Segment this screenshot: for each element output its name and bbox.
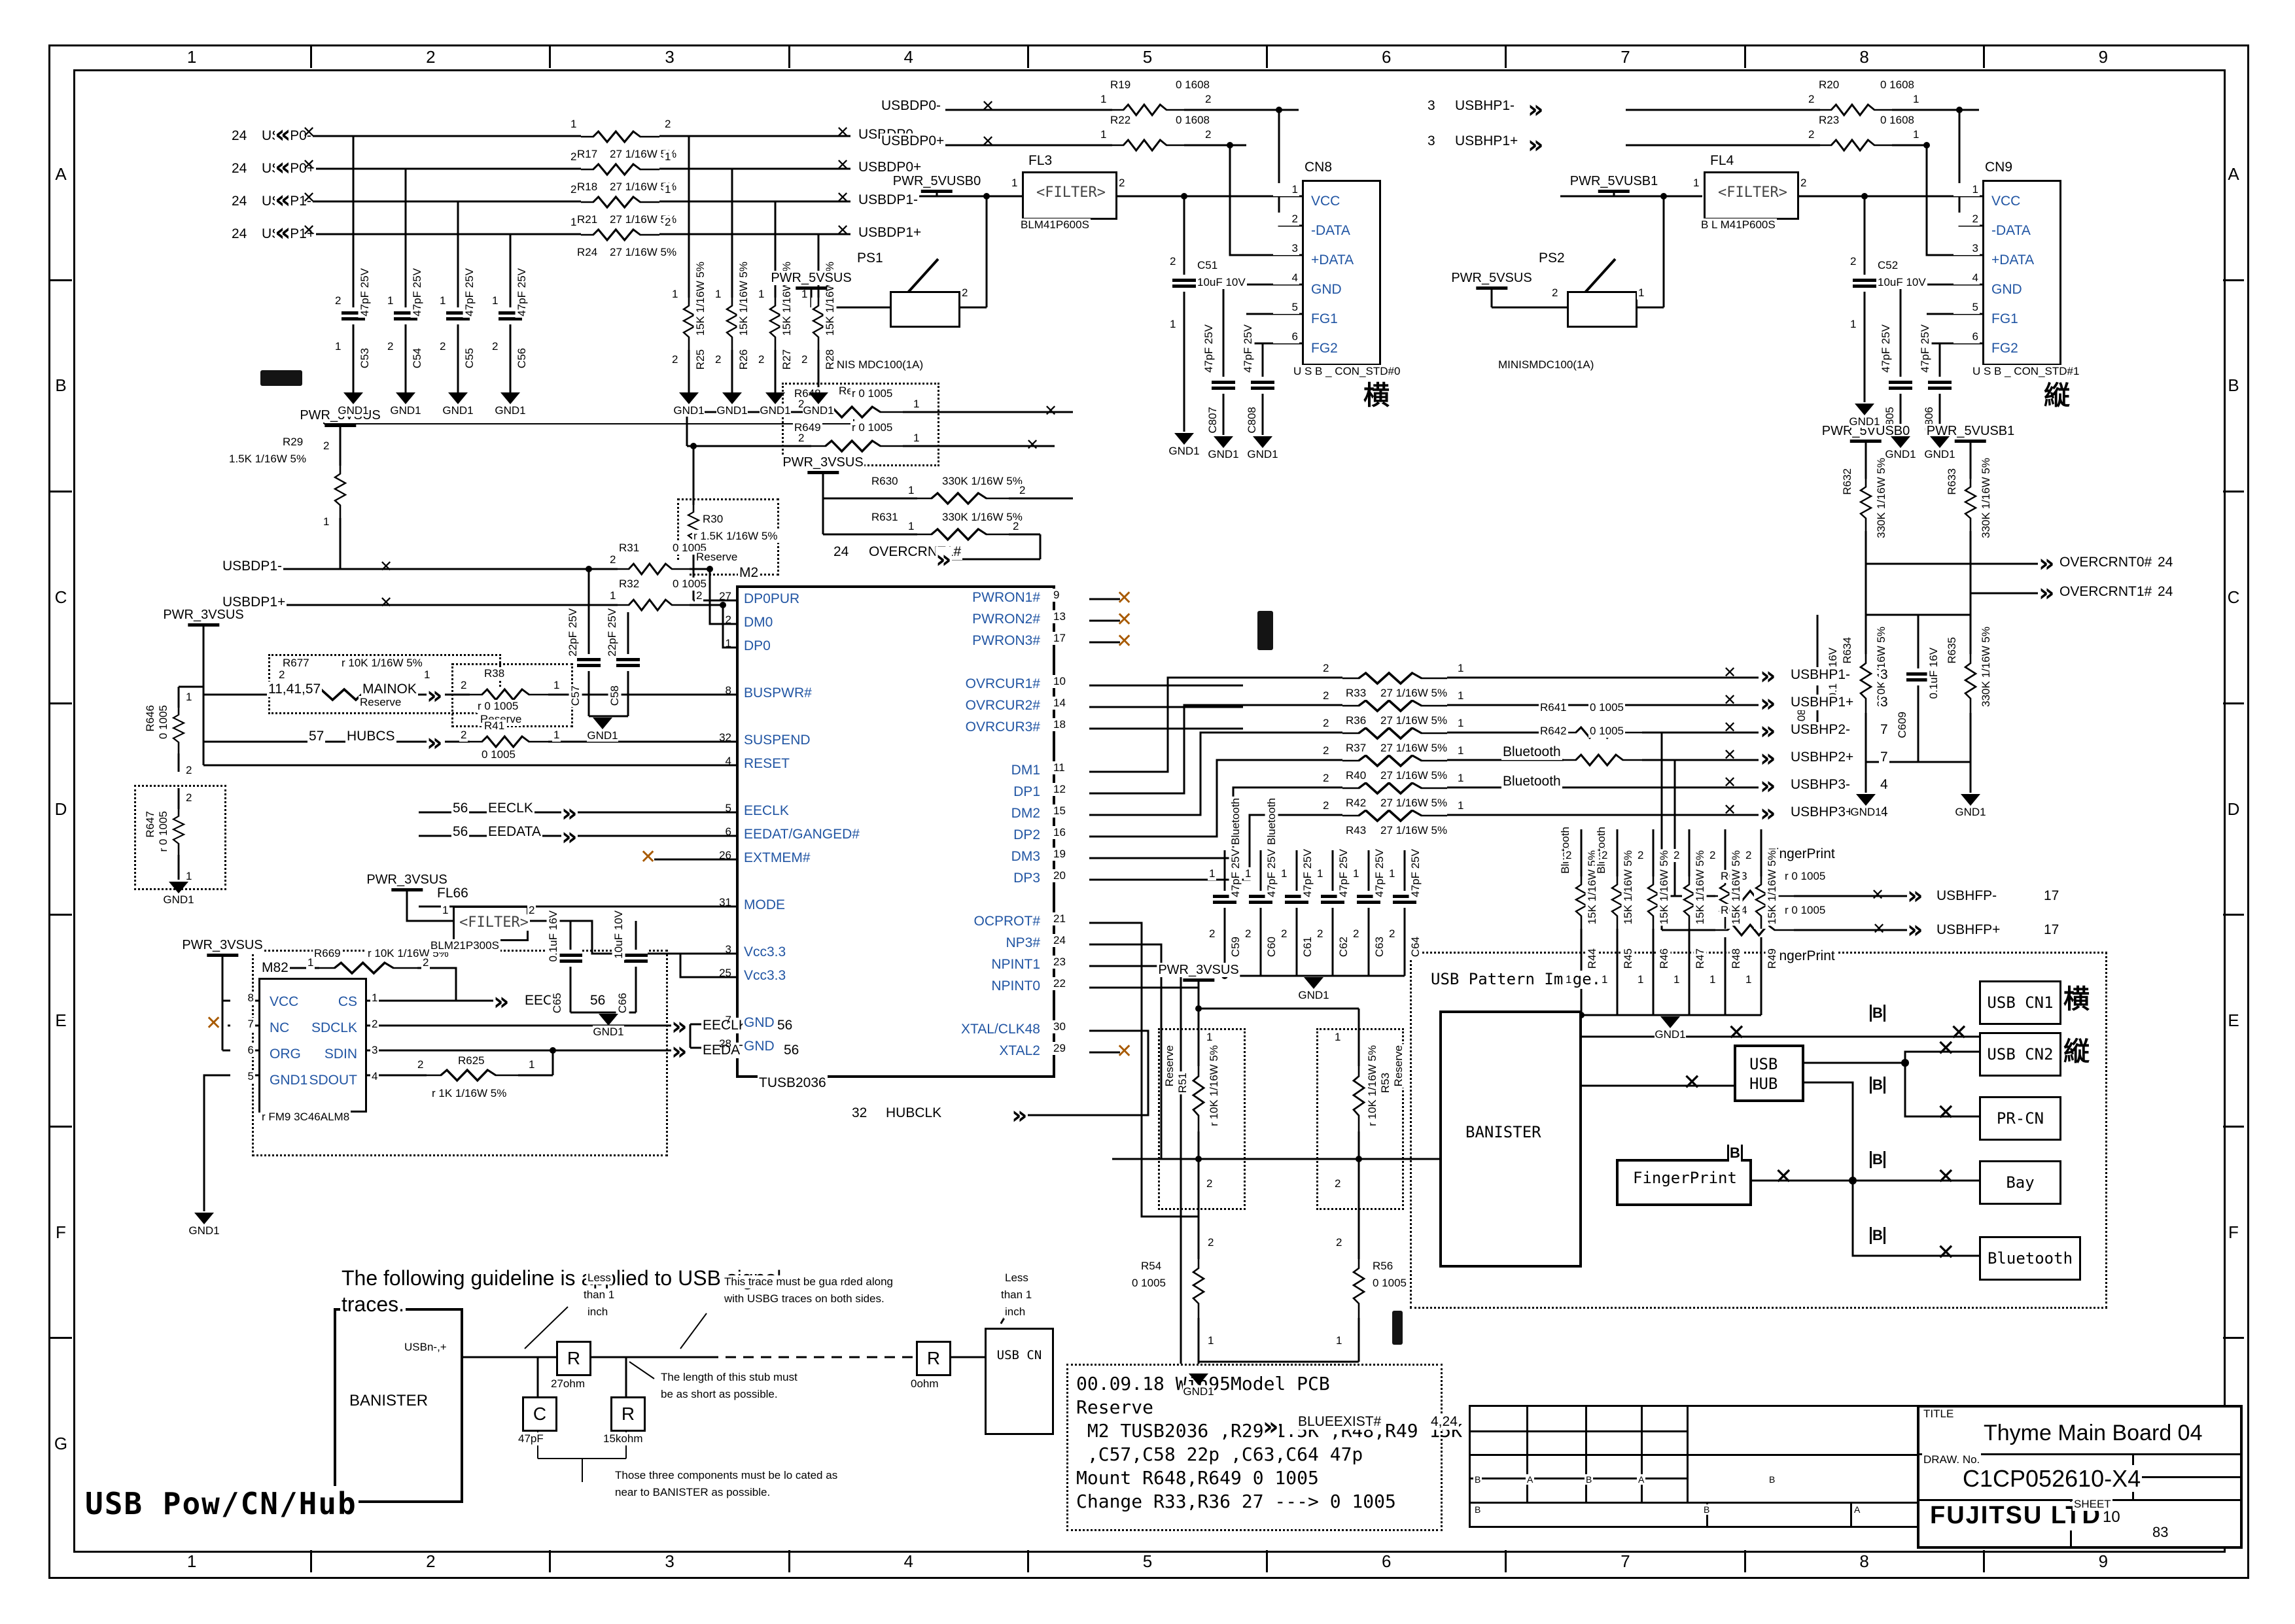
ground-symbol: GND1	[1178, 1373, 1219, 1398]
chip-right-12-name: DM3	[936, 849, 1042, 865]
outputs-caps-0-val: 47pF 25V	[1229, 848, 1242, 899]
chevron-right-icon: »	[1760, 773, 1776, 798]
midleft-r646-pb: 2	[184, 764, 193, 777]
schematic-sheet: 123456789 123456789 ABCDEFG ABCDEFG	[0, 0, 2295, 1624]
power-symbol-pwr3: PWR_3VSUS	[162, 608, 245, 627]
pullups-c609-ref: C609	[1896, 710, 1909, 740]
ground-symbol: GND1	[711, 392, 753, 417]
inputs-rows-2-pb: 1	[663, 183, 672, 196]
inputs-rows-2-page: 24	[230, 194, 248, 209]
chip-left-1-num: 2	[692, 613, 733, 627]
guide-less1: Less	[586, 1271, 612, 1285]
chevron-right-icon: »	[1907, 883, 1923, 908]
resistor-symbol	[618, 562, 690, 576]
outputs-caps-1-pa: 1	[1244, 867, 1252, 880]
test-point-icon: ✕	[981, 98, 994, 114]
blue-r53-pb: 2	[1333, 1177, 1342, 1190]
outputs-rows-4-pb: 1	[1456, 772, 1465, 785]
port1-c_a-val: 47pF 25V	[1880, 323, 1893, 374]
inputs-pulls-1-val: 15K 1/16W 5%	[737, 260, 750, 337]
port1-rm-pb: 1	[1912, 93, 1920, 106]
test-point-icon: ✕	[1683, 1071, 1702, 1094]
inputs-pulls-1-pb: 2	[714, 353, 722, 366]
resistor-symbol	[1112, 138, 1184, 152]
res648-oc1-page: 24	[832, 544, 850, 560]
pattern-banister: BANISTER	[1464, 1124, 1543, 1142]
rev-r2-0: B	[1473, 1504, 1482, 1515]
outputs-pulls-5-pa: 2	[1744, 849, 1753, 862]
eeprom-m82-right-3-name: SDOUT	[296, 1073, 359, 1088]
outputs-r642-val: 0 1005	[1588, 725, 1625, 738]
port0-rp-ref: R22	[1109, 114, 1132, 127]
outputs-caps-3-ref: C62	[1337, 935, 1350, 958]
chevron-right-icon: »	[427, 730, 443, 755]
resistor-symbol	[811, 439, 903, 453]
midleft-r38-val: r 0 1005	[476, 700, 519, 713]
port0-fl-pa: 1	[1010, 177, 1019, 190]
guide-cv: 47pF	[517, 1432, 545, 1445]
outputs-rows-5-ref: R43	[1344, 824, 1367, 837]
outputs-rows-1-val: 27 1/16W 5%	[1379, 714, 1448, 727]
port0-cn-nums-0: 1	[1273, 183, 1299, 196]
midleft-eedata: EEDATA	[487, 824, 542, 840]
note-line: Mount R648,R649 0 1005	[1076, 1466, 1433, 1490]
inputs-caps-0-ref: C53	[359, 347, 372, 370]
eeprom-r669-pb: 2	[421, 956, 430, 969]
outputs-rows-0-pa: 2	[1322, 662, 1330, 675]
midleft-mainok_pg: 11,41,57	[267, 682, 322, 697]
eeprom-c66-ref: C66	[616, 992, 629, 1014]
inputs-rows-1-ref: R18	[576, 181, 599, 194]
ground-symbol: GND1	[1950, 794, 1991, 819]
chip-right-21-num: 29	[1052, 1042, 1067, 1055]
chip-right-5-num: 14	[1052, 697, 1067, 710]
test-point-icon: ✕	[379, 595, 393, 610]
power-symbol-pwr3: PWR_3VSUS	[365, 872, 448, 891]
port0-rp-val: 0 1608	[1174, 114, 1211, 127]
outputs-rows-2-page: 7	[1879, 722, 1889, 738]
outputs-caps-2-pb: 2	[1280, 927, 1288, 941]
midleft-r32-pa: 1	[608, 589, 617, 602]
port0-cn-pins-1: -DATA	[1310, 223, 1352, 239]
res648-r631-pa: 1	[907, 520, 915, 533]
eeprom-fl66-pa: 1	[441, 904, 449, 917]
blue-r53-note: Reserve	[1392, 1044, 1405, 1088]
test-point-icon: ✕	[1936, 1241, 1955, 1264]
test-point-icon: ✕	[302, 157, 315, 173]
pattern-usb-cn2-block: USB CN2	[1979, 1032, 2061, 1077]
midleft-r677-pa: 2	[277, 668, 286, 682]
fp-page_p: 17	[2042, 922, 2060, 938]
chevron-right-icon: »	[1263, 1414, 1279, 1439]
midleft-c58-val: 22pF 25V	[606, 607, 619, 658]
capacitor-symbol	[577, 654, 601, 671]
resistor-symbol	[618, 598, 690, 612]
chip-left-16-num: 25	[692, 967, 733, 980]
inputs-caps-3-ref: C56	[516, 347, 529, 370]
port0-cn-ref: CN8	[1303, 160, 1333, 175]
res648-r649-val: r 0 1005	[850, 421, 894, 434]
port1-cn-pins-0: VCC	[1990, 194, 2022, 209]
guide-c-label: C	[533, 1404, 546, 1425]
guide-shunt-cap: C	[522, 1396, 557, 1432]
guide-r2v: 15kohm	[602, 1432, 644, 1445]
fuse-ps2	[1567, 291, 1638, 328]
port1-cn-ref: CN9	[1984, 160, 2014, 175]
midleft-r31-ref: R31	[618, 542, 640, 555]
port1-c_b-val: 47pF 25V	[1919, 323, 1932, 374]
outputs-bt2: Bluetooth	[1501, 774, 1562, 789]
chip-right-9-name: DP1	[936, 784, 1042, 800]
chip-left-15-name: Vcc3.3	[743, 944, 787, 960]
chip-right-17-name: NPINT1	[936, 957, 1042, 973]
blue-r53-pa: 1	[1333, 1031, 1342, 1044]
port1-cn-pins-4: FG1	[1990, 311, 2020, 327]
port0-c_b-ref: C808	[1246, 406, 1259, 435]
blue-r56-pb: 1	[1335, 1334, 1343, 1347]
chip-left-2-num: 1	[692, 637, 733, 650]
hubclk-page: 32	[850, 1105, 868, 1121]
chip-left-18-name: GND	[743, 1015, 776, 1031]
inputs-rows-3-page: 24	[230, 226, 248, 242]
outputs-caps-5-ref: C64	[1409, 935, 1422, 958]
outputs-pulls-4-val: 15K 1/16W 5%	[1730, 849, 1743, 925]
outputs-rows-1-ref: R36	[1344, 714, 1367, 727]
eeprom-r625-val: r 1K 1/16W 5%	[430, 1087, 508, 1100]
eeprom-m82-part: r FM9 3C46ALM8	[260, 1111, 351, 1124]
test-point-icon: ✕	[1044, 403, 1057, 419]
rev-r1-2: B	[1585, 1474, 1593, 1485]
eeprom-m82-left-1-name: NC	[268, 1020, 290, 1036]
pattern-bay-label: Bay	[2006, 1173, 2034, 1192]
outputs-rows-5-val: 27 1/16W 5%	[1379, 824, 1448, 837]
title_block-title_label: TITLE	[1922, 1408, 1955, 1421]
blue-r56-ref: R56	[1371, 1260, 1394, 1273]
port0-ps-part: MINIS MDC100(1A)	[823, 358, 924, 371]
chevron-right-icon: »	[561, 824, 578, 849]
eeprom-c65-ref: C65	[551, 992, 564, 1014]
blue-r53-ref: R53	[1379, 1071, 1392, 1094]
eeprom-c66-val: 10uF 10V	[612, 909, 625, 960]
pattern-hub1: USB	[1748, 1056, 1779, 1074]
midleft-r38-pa: 2	[459, 679, 468, 692]
test-point-icon: ✕	[1723, 774, 1736, 790]
outputs-rows-2-pa: 2	[1322, 717, 1330, 730]
port0-cn-nums-4: 5	[1273, 301, 1299, 314]
midleft-r41-pa: 2	[459, 729, 468, 742]
pattern-pr-cn-label: PR-CN	[1997, 1109, 2044, 1128]
fp-page_m: 17	[2042, 888, 2060, 904]
test-point-icon: ✕	[1936, 1166, 1955, 1188]
eeprom-m82-left-2-num: 6	[230, 1044, 255, 1057]
eeprom-eeclk-page: 56	[776, 1018, 794, 1033]
chip-right-17-num: 23	[1052, 956, 1067, 969]
title_block-title: Thyme Main Board 04	[1982, 1421, 2204, 1446]
port1-cap-pa: 2	[1849, 255, 1857, 268]
port0-net_p: USBDP0+	[880, 133, 945, 149]
chevron-right-icon: »	[1760, 691, 1776, 716]
guide-r-label: R	[567, 1348, 580, 1369]
guide-three2: near to BANISTER as possible.	[614, 1486, 771, 1499]
test-point-icon: ✕	[836, 190, 849, 205]
outputs-pulls-0-ref: R44	[1586, 947, 1599, 970]
chevron-right-icon: »	[2039, 551, 2055, 576]
port1-fl-ref: FL4	[1709, 153, 1735, 169]
chip-right-16-name: NP3#	[936, 935, 1042, 951]
inputs-pulls-0-val: 15K 1/16W 5%	[694, 260, 707, 337]
chip-right-12-num: 19	[1052, 848, 1067, 861]
outputs-caps-3-val: 47pF 25V	[1337, 848, 1350, 899]
inputs-rows-3-pb: 2	[663, 216, 672, 229]
midleft-r32-ref: R32	[618, 578, 640, 591]
ground-symbol: GND1	[587, 1014, 629, 1039]
blue-r53-val: r 10K 1/16W 5%	[1366, 1044, 1379, 1128]
resistor-symbol	[1859, 654, 1873, 713]
pattern-usb-cn1-label: USB CN1	[1987, 993, 2053, 1012]
chip-right-9-num: 12	[1052, 783, 1067, 796]
port1-rp-pa: 2	[1807, 128, 1815, 141]
port1-fl-part: B L M41P600S	[1700, 218, 1777, 232]
inputs-caps-1-pb: 2	[386, 340, 394, 353]
guide-h1: The following guideline is applied to US…	[340, 1266, 782, 1290]
title_block-draw_label: DRAW. No.	[1922, 1453, 1981, 1466]
chip-left-11-name: EXTMEM#	[743, 850, 812, 866]
midleft-r41-ref: R41	[483, 719, 506, 733]
eeprom-r669-pa: 1	[306, 956, 315, 969]
outputs-rows-4-page: 4	[1879, 777, 1889, 793]
inputs-rows-1-out: USBDP0+	[857, 160, 922, 175]
pullups-c609-val: 0.1uF 16V	[1927, 646, 1940, 700]
midleft-r41-pb: 1	[552, 729, 561, 742]
outputs-rows-1-net: USBHP1+	[1789, 695, 1855, 710]
blue-r56-val: 0 1005	[1371, 1277, 1408, 1290]
ground-symbol: GND1	[437, 392, 479, 417]
eeprom-m82-right-3-num: 4	[370, 1070, 379, 1083]
capacitor-symbol	[1251, 377, 1274, 394]
ground-symbol: GND1	[1919, 436, 1961, 461]
chip-right-15-num: 21	[1052, 912, 1067, 925]
outputs-caps-5-pa: 1	[1388, 867, 1396, 880]
ground-symbol: GND1	[158, 882, 200, 907]
eeprom-m82-left-3-num: 5	[230, 1070, 255, 1083]
port0-cn-pins-4: FG1	[1310, 311, 1339, 327]
inputs-rows-1-pb: 1	[663, 150, 672, 164]
chevron-right-icon: »	[1528, 97, 1544, 122]
inputs-pulls-2-pb: 2	[757, 353, 765, 366]
guide-less2: than 1	[1000, 1288, 1033, 1302]
test-point-icon: ✕	[836, 157, 849, 173]
midleft-r30-note: Reserve	[695, 551, 739, 564]
resistor-symbol	[1963, 479, 1978, 531]
midleft-r677-val: r 10K 1/16W 5%	[340, 657, 424, 670]
inputs-pulls-2-ref: R27	[780, 348, 794, 371]
inputs-pulls-1-pa: 1	[714, 288, 722, 301]
outputs-pulls-5-ref: R49	[1766, 947, 1779, 970]
outputs-caps-5-val: 47pF 25V	[1409, 848, 1422, 899]
port0-cn-nums-1: 2	[1273, 213, 1299, 226]
chip-right-11-name: DP2	[936, 827, 1042, 843]
outputs-pulls-3-pa: 2	[1672, 849, 1681, 862]
midleft-r31-pa: 2	[608, 553, 617, 566]
resistor-symbol	[1342, 753, 1447, 768]
rev-r1-4: B	[1768, 1474, 1776, 1485]
outputs-rows-3-val: 27 1/16W 5%	[1379, 769, 1448, 782]
fp-r644-val: r 0 1005	[1783, 904, 1827, 917]
chevron-right-icon: »	[1760, 746, 1776, 770]
inputs-caps-1-ref: C54	[411, 347, 424, 370]
midleft-r677-ref: R677	[281, 657, 311, 670]
note-line: ,C57,C58 22p ,C63,C64 47p	[1076, 1443, 1433, 1466]
rev-r1-0: B	[1473, 1474, 1482, 1485]
outputs-pulls-2-pa: 2	[1636, 849, 1645, 862]
guide-r3v: 0ohm	[909, 1377, 940, 1391]
blue-r54-pb: 1	[1206, 1334, 1215, 1347]
outputs-rows-2-net: USBHP2-	[1789, 722, 1851, 738]
test-point-icon: ✕	[1723, 802, 1736, 818]
chip-left-19-num: 28	[692, 1037, 733, 1050]
eeprom-r625-pb: 1	[527, 1058, 536, 1071]
res648-r630-pa: 1	[907, 484, 915, 497]
rev-r2-1: B	[1702, 1504, 1711, 1515]
rev-r2-2: A	[1853, 1504, 1861, 1515]
ground-symbol: GND1	[489, 392, 531, 417]
port0-cn-nums-5: 6	[1273, 330, 1299, 343]
title_block-sheet_total: 83	[2151, 1524, 2169, 1540]
outputs-caps-0-ref: C59	[1229, 935, 1242, 958]
pullups-r632-ref: R632	[1841, 467, 1854, 496]
outputs-r641-val: 0 1005	[1588, 701, 1625, 714]
midleft-r30-val: r 1.5K 1/16W 5%	[692, 530, 779, 543]
outputs-rows-2-pb: 1	[1456, 717, 1465, 730]
outputs-pulls-5-val: 15K 1/16W 5%	[1766, 849, 1779, 925]
port0-cn-nums-3: 4	[1273, 271, 1299, 285]
chip-right-4-name: OVRCUR1#	[936, 676, 1042, 692]
chevron-right-icon: »	[1760, 718, 1776, 743]
eeprom-c65-val: 0.1uF 16V	[547, 909, 560, 963]
chevron-right-icon: »	[1907, 917, 1923, 942]
port1-ps-pb: 1	[1637, 286, 1645, 300]
capacitor-symbol	[1212, 377, 1235, 394]
chip-right-2-num: 17	[1052, 632, 1067, 645]
outputs-pulls-2-val: 15K 1/16W 5%	[1658, 849, 1671, 925]
res648-r631-pb: 2	[1011, 520, 1020, 533]
midleft-eedata_pg: 56	[451, 824, 469, 840]
midleft-r647-pa: 2	[184, 791, 193, 804]
outputs-pulls-0-pa: 2	[1564, 849, 1573, 862]
port0-rp-pb: 2	[1204, 128, 1212, 141]
chip-right-13-name: DP3	[936, 871, 1042, 886]
chip-left-13-num: 31	[692, 896, 733, 909]
midleft-r677-pb: 1	[423, 668, 431, 682]
pullups-r634-ref: R634	[1841, 636, 1854, 665]
midleft-r29-val: 1.5K 1/16W 5%	[228, 453, 307, 466]
inputs-pulls-0-ref: R25	[694, 348, 707, 371]
port0-ps-pb: 2	[960, 286, 969, 300]
outputs-caps-5-pb: 2	[1388, 927, 1396, 941]
outputs-rows-1-pa: 2	[1322, 689, 1330, 702]
test-point-icon: ✕	[379, 559, 393, 574]
port0-cn-pins-5: FG2	[1310, 341, 1339, 356]
title_block-sheet_no: 10	[2101, 1508, 2122, 1527]
port1-net_m_pg: 3	[1426, 98, 1437, 114]
note-line: Change R33,R36 27 ---> 0 1005	[1076, 1490, 1433, 1513]
chip-right-13-num: 20	[1052, 869, 1067, 882]
power-symbol-pwr3: PWR_3VSUS	[1157, 963, 1240, 982]
chip-right-15-name: OCPROT#	[936, 914, 1042, 929]
pattern-bluetooth-label: Bluetooth	[1988, 1249, 2073, 1268]
chip-left-0-num: 27	[692, 590, 733, 603]
midleft-r30-ref: R30	[701, 513, 724, 526]
port1-rp-val: 0 1608	[1879, 114, 1916, 127]
outputs-rows-0-val: 27 1/16W 5%	[1379, 687, 1448, 700]
midleft-r647-ref: R647	[144, 810, 157, 839]
outputs-pulls-5-pb: 1	[1744, 973, 1753, 986]
power-symbol-pwr3: PWR_3VSUS	[181, 938, 264, 957]
outputs-pulls-3-val: 15K 1/16W 5%	[1694, 849, 1707, 925]
port0-cn-pins-0: VCC	[1310, 194, 1341, 209]
chip-right-20-num: 30	[1052, 1020, 1067, 1033]
port1-rm-val: 0 1608	[1879, 78, 1916, 92]
guide-less3: inch	[1004, 1305, 1026, 1319]
no-connect-icon: ✕	[640, 848, 656, 867]
pattern-cn2_mark: 縦	[2062, 1037, 2091, 1067]
outputs-caps-0-pb: 2	[1208, 927, 1216, 941]
inputs-rows-1-pa: 2	[569, 150, 578, 164]
port0-fl-part: BLM41P600S	[1019, 218, 1091, 232]
outputs-caps-2-val: 47pF 25V	[1301, 848, 1314, 899]
chip-left-18-num: 7	[692, 1014, 733, 1027]
no-connect-icon: ✕	[1116, 1042, 1132, 1062]
outputs-caps-3-pa: 1	[1316, 867, 1324, 880]
port0-cn-pins-2: +DATA	[1310, 252, 1355, 268]
midleft-hubcs: HUBCS	[345, 729, 396, 744]
pullups-oc0-net: OVERCRNT0#	[2058, 555, 2153, 570]
test-point-icon: ✕	[1871, 887, 1884, 903]
guide-usb-cn-label: USB CN	[997, 1348, 1042, 1362]
outputs-pulls-0-pb: 1	[1564, 973, 1573, 986]
capacitor-symbol	[1928, 377, 1952, 394]
outputs-rows-0-net: USBHP1-	[1789, 667, 1851, 683]
inputs-pulls-0-pa: 1	[671, 288, 679, 301]
port1-cap-ref: C52	[1876, 259, 1899, 272]
inputs-rows-2-ref: R21	[576, 213, 599, 226]
chip-right-0-name: PWRON1#	[936, 590, 1042, 606]
revision-notes: 00.09.18 Win95Model PCBReserve M2 TUSB20…	[1066, 1364, 1443, 1531]
chip-ref: M2	[738, 565, 760, 581]
fp-r643-val: r 0 1005	[1783, 870, 1827, 883]
ground-symbol: GND1	[797, 392, 839, 417]
test-point-icon: ✕	[1723, 665, 1736, 680]
inputs-rows-3-val: 27 1/16W 5%	[608, 246, 678, 259]
test-point-icon: ✕	[302, 124, 315, 140]
inputs-rows-0-pb: 2	[663, 118, 672, 131]
port0-cn-pins-3: GND	[1310, 282, 1343, 298]
inputs-pulls-3-ref: R28	[824, 348, 837, 371]
guide-less1: Less	[1004, 1271, 1030, 1285]
chip-right-4-num: 10	[1052, 675, 1067, 688]
chip-left-10-num: 6	[692, 825, 733, 838]
resistor-symbol	[1859, 479, 1873, 531]
guide-less2: than 1	[582, 1288, 616, 1302]
res648-r630-val: 330K 1/16W 5%	[941, 475, 1024, 488]
test-point-icon: ✕	[836, 222, 849, 238]
chip-right-6-name: OVRCUR3#	[936, 719, 1042, 735]
chip-left-11-num: 26	[692, 849, 733, 862]
res648-r649-pb: 1	[912, 432, 920, 445]
capacitor-symbol	[624, 950, 648, 967]
guide-end-resistor: R	[916, 1341, 951, 1376]
chip-left-7-num: 4	[692, 755, 733, 768]
